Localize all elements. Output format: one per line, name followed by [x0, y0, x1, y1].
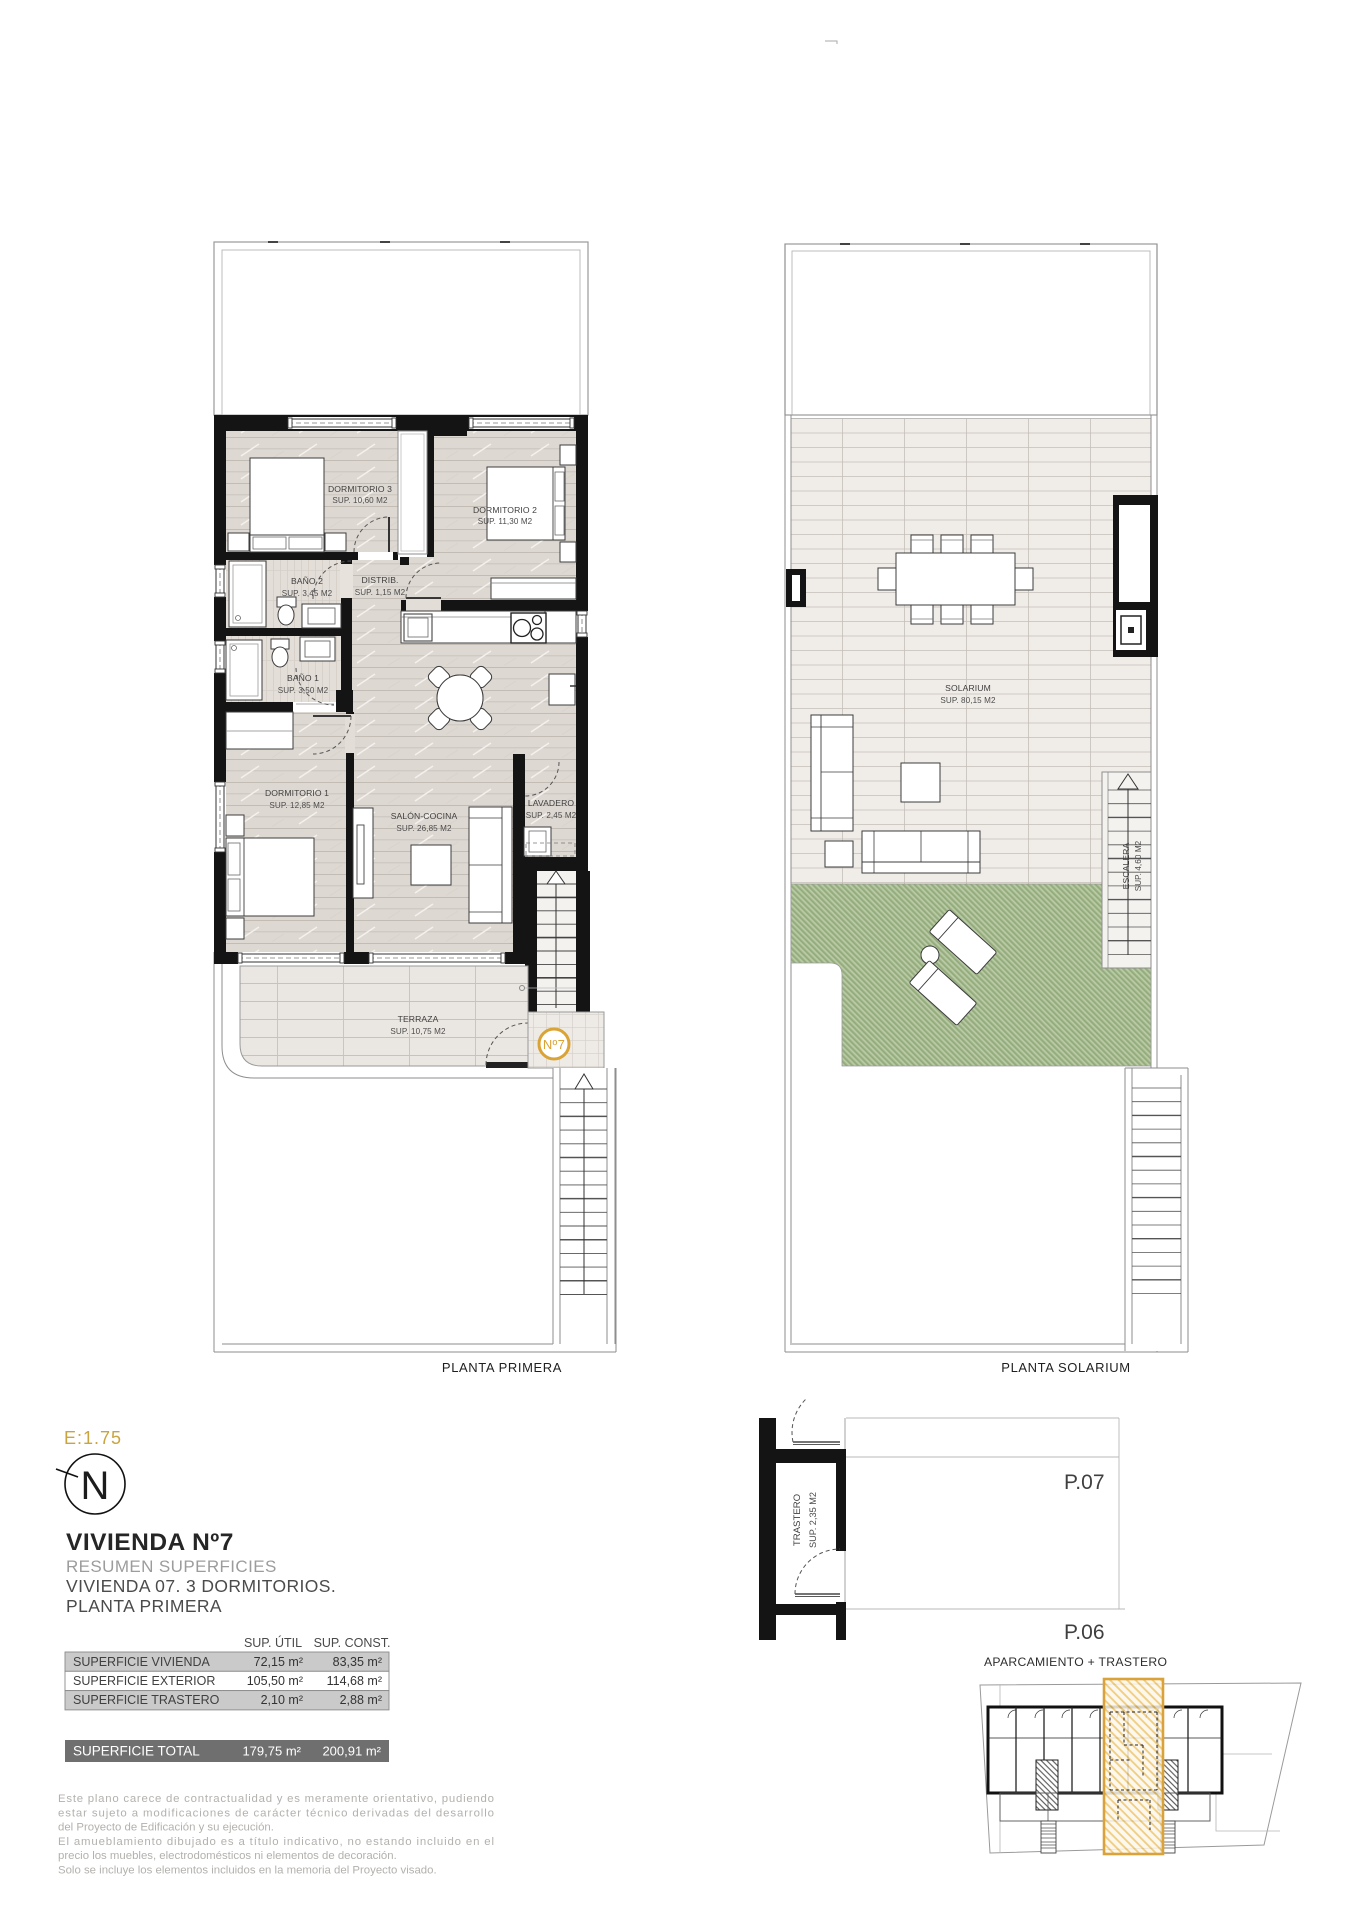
svg-text:DORMITORIO 3: DORMITORIO 3: [328, 484, 392, 494]
svg-text:SUP. 12,85 M2: SUP. 12,85 M2: [269, 801, 325, 810]
svg-text:TRASTERO: TRASTERO: [792, 1494, 803, 1546]
svg-text:P.06: P.06: [1064, 1621, 1105, 1644]
svg-text:2,10 m²: 2,10 m²: [261, 1693, 303, 1707]
svg-text:2,88 m²: 2,88 m²: [340, 1693, 382, 1707]
svg-text:SUPERFICIE TRASTERO: SUPERFICIE TRASTERO: [73, 1693, 220, 1707]
svg-text:SUP. 10,75 M2: SUP. 10,75 M2: [390, 1027, 446, 1036]
svg-text:105,50 m²: 105,50 m²: [247, 1674, 303, 1688]
svg-text:SALÓN-COCINA: SALÓN-COCINA: [391, 811, 458, 821]
svg-text:SUP. 80,15 M2: SUP. 80,15 M2: [940, 696, 996, 705]
svg-text:DORMITORIO 1: DORMITORIO 1: [265, 788, 329, 798]
svg-text:83,35 m²: 83,35 m²: [333, 1655, 382, 1669]
svg-text:SUP. 1,15 M2: SUP. 1,15 M2: [355, 588, 406, 597]
svg-text:DISTRIB.: DISTRIB.: [361, 575, 398, 585]
svg-text:200,91 m²: 200,91 m²: [322, 1744, 381, 1759]
svg-text:BAÑO 2: BAÑO 2: [291, 576, 323, 586]
svg-text:precio los muebles, electrodom: precio los muebles, electrodomésticos ni…: [58, 1850, 397, 1862]
svg-text:RESUMEN SUPERFICIES: RESUMEN SUPERFICIES: [66, 1557, 277, 1576]
svg-text:SUPERFICIE VIVIENDA: SUPERFICIE VIVIENDA: [73, 1655, 210, 1669]
svg-text:El amueblamiento dibujado es a: El amueblamiento dibujado es a título in…: [58, 1836, 494, 1848]
svg-text:SUP. 3,50 M2: SUP. 3,50 M2: [278, 686, 329, 695]
svg-text:PLANTA PRIMERA: PLANTA PRIMERA: [442, 1360, 562, 1375]
svg-text:ESCALERA: ESCALERA: [1121, 843, 1131, 890]
svg-text:Este plano carece de contractu: Este plano carece de contractualidad y e…: [58, 1793, 494, 1805]
svg-text:SUP. 11,30 M2: SUP. 11,30 M2: [478, 517, 533, 526]
svg-text:SUP. 10,60 M2: SUP. 10,60 M2: [332, 496, 388, 505]
svg-text:DORMITORIO 2: DORMITORIO 2: [473, 505, 537, 515]
svg-text:114,68 m²: 114,68 m²: [327, 1674, 382, 1688]
svg-text:SUP. CONST.: SUP. CONST.: [314, 1636, 391, 1650]
svg-text:72,15 m²: 72,15 m²: [254, 1655, 303, 1669]
svg-text:SUP. ÚTIL: SUP. ÚTIL: [244, 1635, 302, 1650]
svg-text:SUPERFICIE TOTAL: SUPERFICIE TOTAL: [73, 1744, 200, 1759]
svg-text:P.07: P.07: [1064, 1471, 1105, 1494]
svg-text:N: N: [81, 1464, 110, 1508]
svg-text:E:1.75: E:1.75: [64, 1428, 122, 1448]
svg-text:SUP. 26,85 M2: SUP. 26,85 M2: [396, 824, 452, 833]
svg-text:SUP. 2,35 M2: SUP. 2,35 M2: [808, 1492, 818, 1548]
svg-text:Solo se incluye los elementos: Solo se incluye los elementos incluidos …: [58, 1865, 437, 1877]
svg-text:del Proyecto de Edificación y: del Proyecto de Edificación y su ejecuci…: [58, 1822, 274, 1834]
svg-text:PLANTA PRIMERA: PLANTA PRIMERA: [66, 1596, 222, 1616]
svg-text:SUP. 4,60 M2: SUP. 4,60 M2: [1134, 840, 1143, 891]
svg-text:SUP. 2,45 M2: SUP. 2,45 M2: [526, 811, 577, 820]
svg-text:Nº7: Nº7: [543, 1037, 565, 1052]
svg-text:BAÑO 1: BAÑO 1: [287, 673, 319, 683]
svg-text:SUPERFICIE EXTERIOR: SUPERFICIE EXTERIOR: [73, 1674, 215, 1688]
svg-text:179,75 m²: 179,75 m²: [242, 1744, 301, 1759]
svg-text:VIVIENDA 07. 3 DORMITORIOS.: VIVIENDA 07. 3 DORMITORIOS.: [66, 1576, 336, 1596]
svg-text:estar sujeto a modificaciones: estar sujeto a modificaciones de carácte…: [58, 1807, 494, 1819]
svg-text:PLANTA SOLARIUM: PLANTA SOLARIUM: [1001, 1360, 1130, 1375]
svg-text:TERRAZA: TERRAZA: [398, 1014, 439, 1024]
svg-text:APARCAMIENTO + TRASTERO: APARCAMIENTO + TRASTERO: [984, 1655, 1167, 1669]
svg-text:SOLARIUM: SOLARIUM: [945, 683, 991, 693]
svg-text:LAVADERO: LAVADERO: [528, 798, 575, 808]
svg-text:SUP. 3,45 M2: SUP. 3,45 M2: [282, 589, 333, 598]
svg-text:VIVIENDA Nº7: VIVIENDA Nº7: [66, 1529, 234, 1556]
